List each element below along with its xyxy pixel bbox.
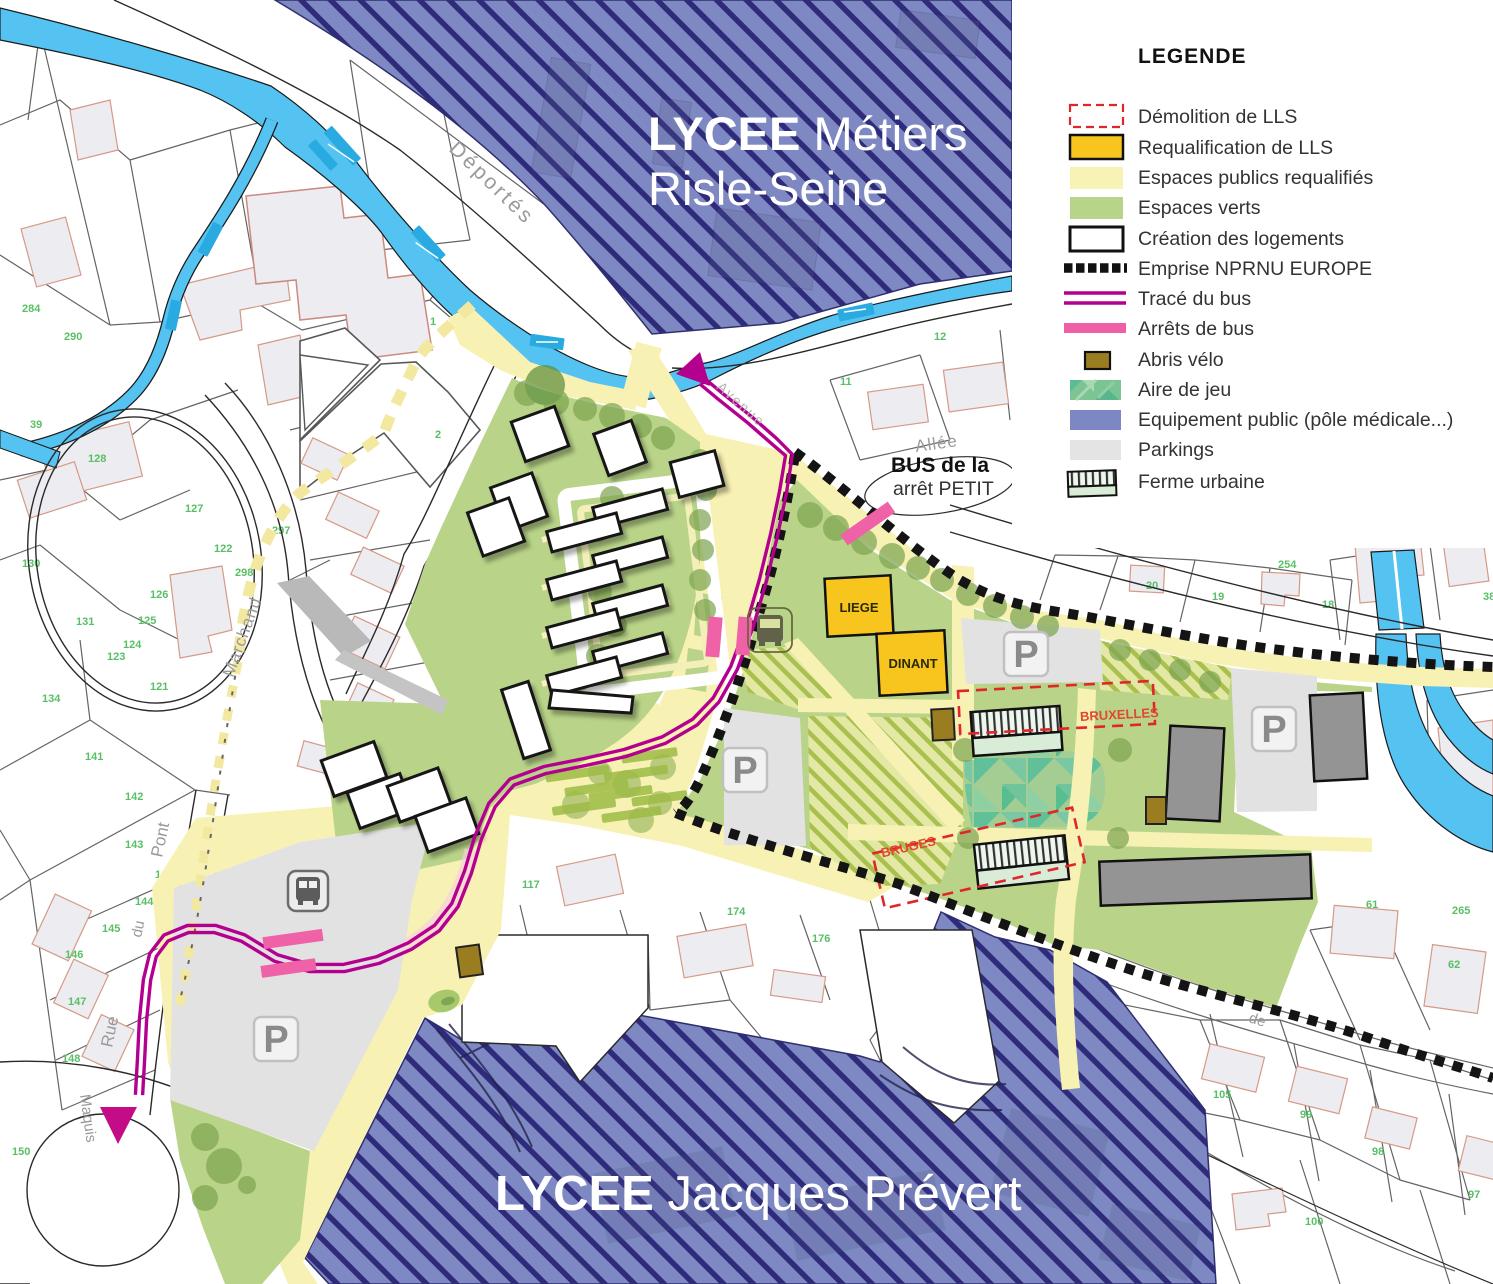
svg-text:Emprise NPRNU EUROPE: Emprise NPRNU EUROPE <box>1138 258 1372 280</box>
svg-text:62: 62 <box>1448 959 1460 971</box>
svg-text:DINANT: DINANT <box>888 656 937 671</box>
svg-text:BUS de la: BUS de la <box>891 454 989 477</box>
svg-text:Ferme urbaine: Ferme urbaine <box>1138 471 1265 493</box>
svg-text:P: P <box>732 750 757 792</box>
svg-text:12: 12 <box>934 331 946 343</box>
svg-text:100: 100 <box>1305 1216 1323 1228</box>
svg-text:117: 117 <box>522 879 540 891</box>
svg-text:Espaces verts: Espaces verts <box>1138 197 1261 219</box>
svg-text:Espaces publics requalifiés: Espaces publics requalifiés <box>1138 167 1373 189</box>
svg-text:du: du <box>128 919 148 939</box>
svg-text:11: 11 <box>840 376 852 388</box>
svg-text:146: 146 <box>65 949 83 961</box>
svg-text:Requalification de LLS: Requalification de LLS <box>1138 137 1333 159</box>
svg-text:150: 150 <box>12 1146 30 1158</box>
svg-text:121: 121 <box>150 681 168 693</box>
svg-text:174: 174 <box>727 906 746 918</box>
svg-text:Risle-Seine: Risle-Seine <box>648 162 888 215</box>
svg-text:143: 143 <box>125 839 143 851</box>
svg-text:LYCEE Métiers: LYCEE Métiers <box>648 107 968 160</box>
svg-text:145: 145 <box>102 923 120 935</box>
svg-text:131: 131 <box>76 616 94 628</box>
svg-text:126: 126 <box>150 589 168 601</box>
svg-text:142: 142 <box>125 791 143 803</box>
svg-text:P: P <box>263 1019 288 1061</box>
svg-text:LIEGE: LIEGE <box>839 600 878 615</box>
svg-text:Abris vélo: Abris vélo <box>1138 349 1224 371</box>
svg-text:284: 284 <box>22 303 41 315</box>
svg-text:127: 127 <box>185 503 203 515</box>
svg-text:128: 128 <box>88 453 106 465</box>
svg-text:arrêt PETIT: arrêt PETIT <box>893 478 994 500</box>
svg-text:122: 122 <box>214 543 232 555</box>
svg-text:LEGENDE: LEGENDE <box>1138 45 1247 68</box>
svg-text:Parkings: Parkings <box>1138 439 1214 461</box>
svg-text:134: 134 <box>42 693 61 705</box>
svg-text:141: 141 <box>85 751 103 763</box>
svg-text:LYCEE Jacques Prévert: LYCEE Jacques Prévert <box>495 1167 1022 1221</box>
svg-text:P: P <box>1013 634 1038 676</box>
svg-text:1: 1 <box>430 316 436 328</box>
svg-text:147: 147 <box>68 996 86 1008</box>
svg-text:Démolition de LLS: Démolition de LLS <box>1138 106 1297 128</box>
svg-text:Arrêts de bus: Arrêts de bus <box>1138 318 1254 340</box>
svg-text:18: 18 <box>1322 599 1334 611</box>
svg-text:P: P <box>1261 709 1286 751</box>
svg-text:Tracé du bus: Tracé du bus <box>1138 288 1251 310</box>
svg-text:Equipement public (pôle médica: Equipement public (pôle médicale...) <box>1138 409 1453 431</box>
svg-text:38: 38 <box>1483 591 1493 603</box>
svg-text:290: 290 <box>64 331 82 343</box>
svg-text:176: 176 <box>812 933 830 945</box>
svg-text:265: 265 <box>1452 905 1470 917</box>
svg-text:254: 254 <box>1278 559 1297 571</box>
svg-text:2: 2 <box>435 429 441 441</box>
svg-text:99: 99 <box>1300 1109 1312 1121</box>
svg-text:125: 125 <box>138 615 156 627</box>
svg-text:98: 98 <box>1372 1146 1384 1158</box>
svg-text:298: 298 <box>235 567 253 579</box>
svg-text:124: 124 <box>123 639 142 651</box>
svg-text:61: 61 <box>1366 899 1378 911</box>
svg-text:123: 123 <box>107 651 125 663</box>
svg-text:97: 97 <box>1468 1189 1480 1201</box>
svg-text:105: 105 <box>1213 1089 1231 1101</box>
svg-text:144: 144 <box>135 896 154 908</box>
svg-text:39: 39 <box>30 419 42 431</box>
svg-text:Création des logements: Création des logements <box>1138 228 1344 250</box>
svg-text:19: 19 <box>1212 591 1224 603</box>
svg-text:Aire de jeu: Aire de jeu <box>1138 379 1231 401</box>
